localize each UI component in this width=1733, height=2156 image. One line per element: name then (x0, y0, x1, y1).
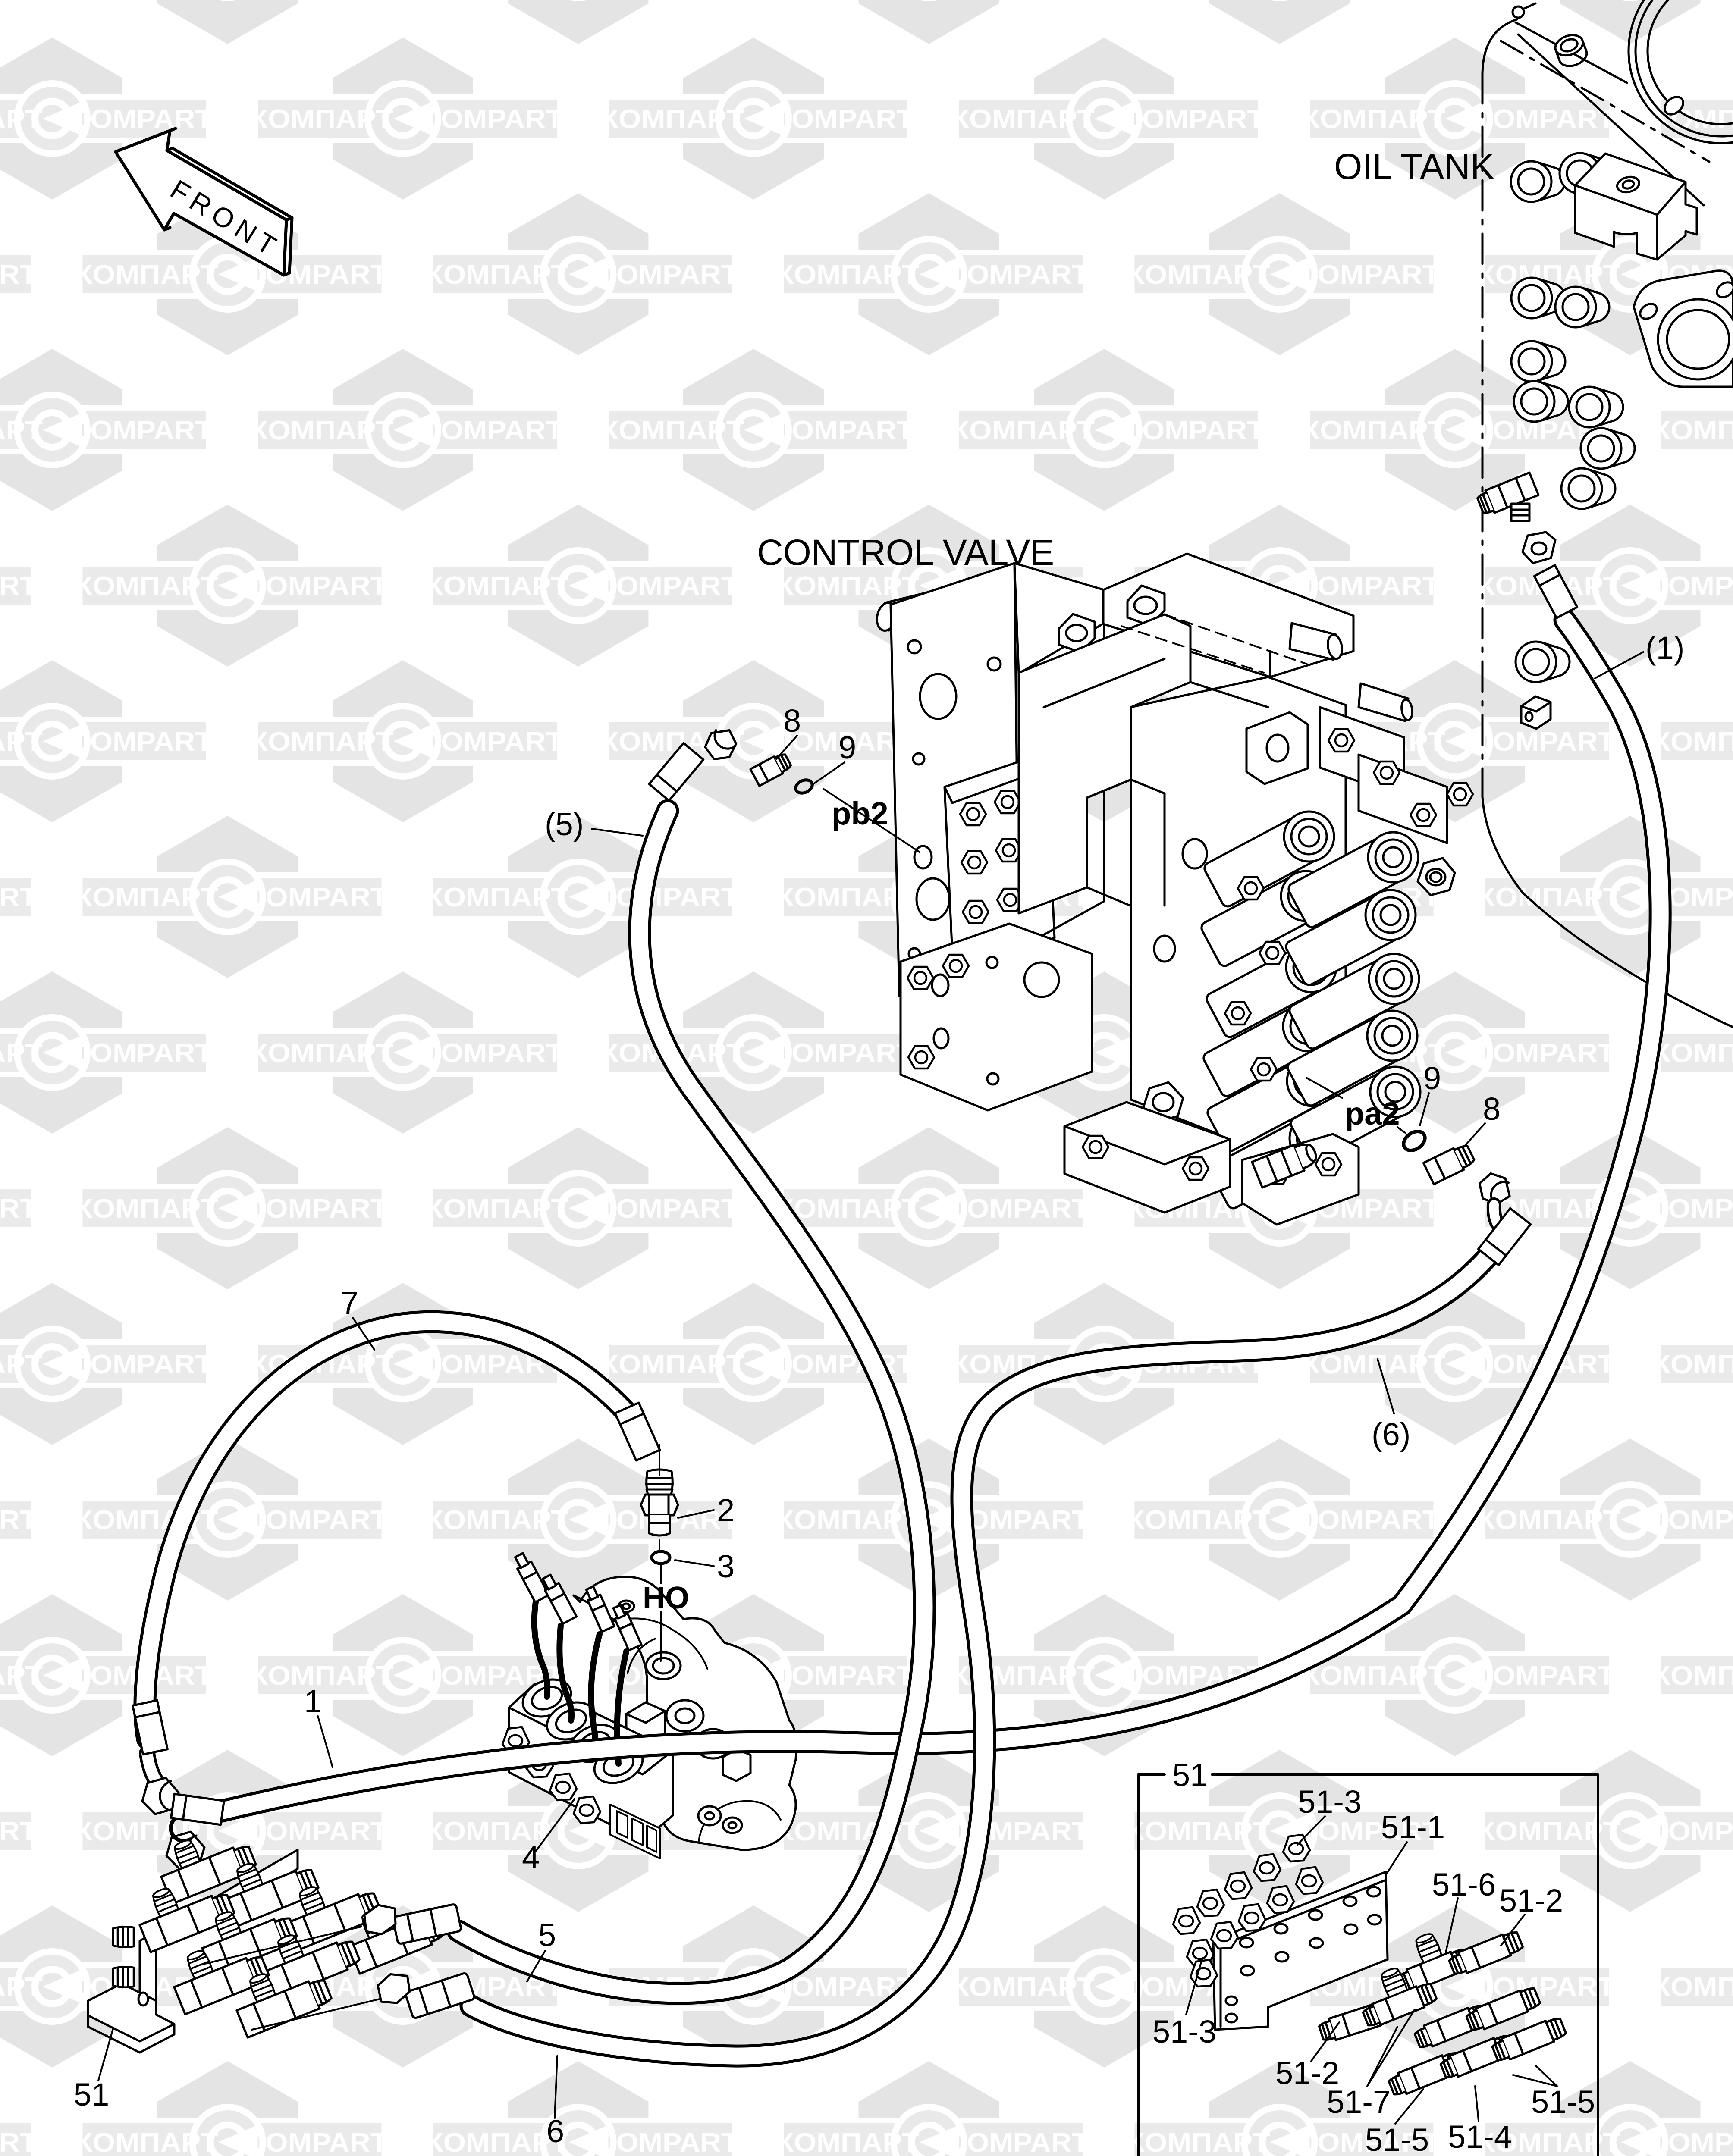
svg-text:51-5: 51-5 (1365, 2122, 1429, 2156)
svg-text:51-3: 51-3 (1152, 2014, 1216, 2049)
svg-text:(5): (5) (545, 806, 584, 842)
svg-text:51-3: 51-3 (1298, 1784, 1362, 1820)
svg-text:OIL TANK: OIL TANK (1334, 146, 1494, 187)
svg-text:51-5: 51-5 (1531, 2084, 1595, 2120)
svg-text:9: 9 (1423, 1060, 1441, 1096)
svg-text:pb2: pb2 (832, 796, 888, 831)
svg-text:HO: HO (643, 1581, 689, 1615)
svg-text:3: 3 (717, 1548, 735, 1584)
svg-text:8: 8 (1483, 1091, 1501, 1127)
svg-text:51-4: 51-4 (1448, 2119, 1512, 2155)
svg-text:1: 1 (304, 1683, 322, 1719)
svg-text:51-6: 51-6 (1432, 1867, 1496, 1902)
svg-text:2: 2 (717, 1492, 735, 1528)
svg-text:7: 7 (341, 1285, 358, 1321)
svg-text:6: 6 (546, 2113, 564, 2149)
svg-text:(1): (1) (1645, 630, 1684, 666)
svg-text:9: 9 (838, 730, 856, 765)
svg-text:5: 5 (538, 1917, 556, 1953)
svg-text:pa2: pa2 (1345, 1096, 1400, 1131)
svg-text:(6): (6) (1372, 1416, 1410, 1452)
svg-text:8: 8 (783, 703, 801, 739)
svg-text:51: 51 (1172, 1757, 1208, 1793)
svg-text:51-2: 51-2 (1499, 1883, 1563, 1918)
svg-text:51: 51 (74, 2077, 109, 2112)
svg-text:51-7: 51-7 (1327, 2084, 1391, 2120)
svg-text:4: 4 (522, 1839, 540, 1875)
svg-text:51-1: 51-1 (1381, 1809, 1445, 1845)
